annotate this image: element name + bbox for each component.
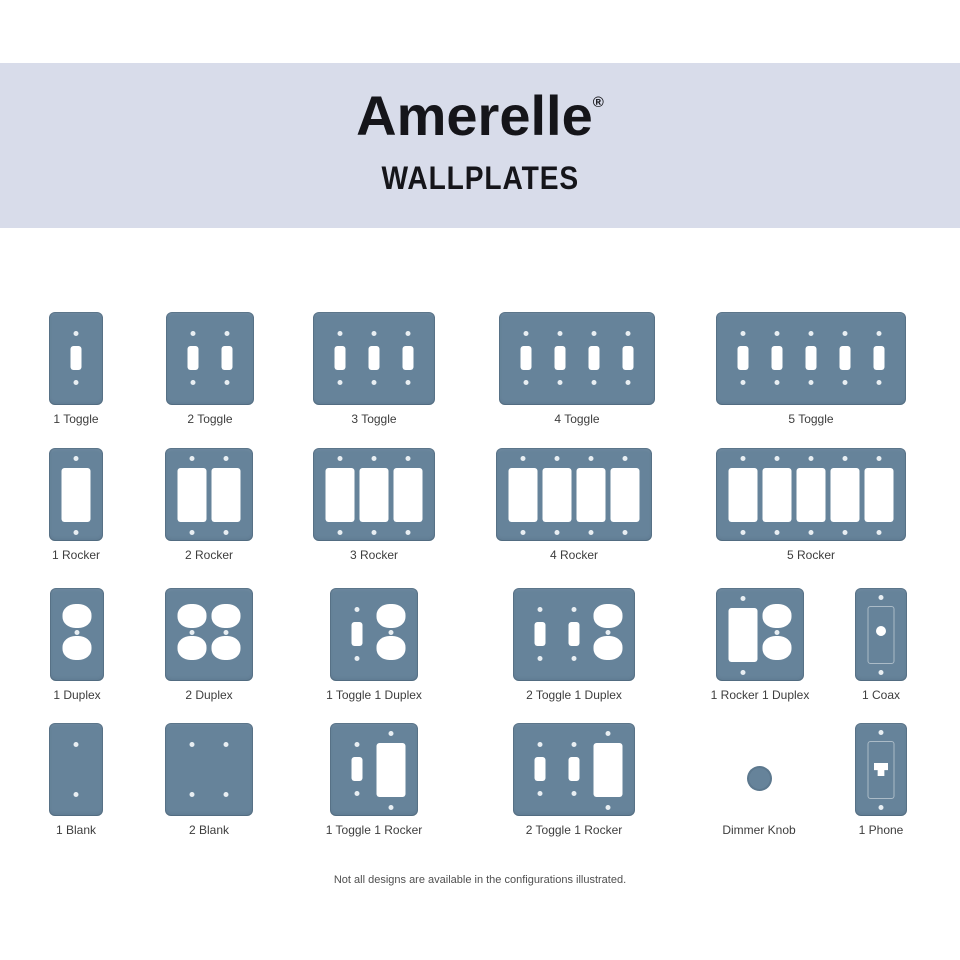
dimmer-knob-illustration	[747, 766, 772, 791]
screw-hole	[538, 791, 543, 796]
rocker-gang	[862, 448, 896, 541]
rocker-gang	[608, 448, 642, 541]
screw-hole	[406, 530, 411, 535]
duplex-gang	[374, 588, 408, 681]
toggle-gang	[357, 312, 391, 405]
screw-hole	[879, 805, 884, 810]
rocker-gang	[828, 448, 862, 541]
item-label-4-toggle: 4 Toggle	[477, 412, 677, 426]
screw-hole	[877, 331, 882, 336]
duplex-outlet-cutout	[212, 636, 241, 660]
toggle-gang	[611, 312, 645, 405]
toggle-cutout	[623, 346, 634, 370]
screw-hole	[843, 456, 848, 461]
toggle-gang	[828, 312, 862, 405]
toggle-cutout	[589, 346, 600, 370]
screw-hole	[592, 331, 597, 336]
screw-hole	[74, 530, 79, 535]
duplex-gang	[209, 588, 243, 681]
screw-hole	[190, 792, 195, 797]
rocker-gang	[760, 448, 794, 541]
wallplate-1-rocker	[49, 448, 103, 541]
screw-hole	[521, 456, 526, 461]
item-label-1-toggle-1-rocker: 1 Toggle 1 Rocker	[274, 823, 474, 837]
screw-hole	[606, 731, 611, 736]
screw-hole	[879, 595, 884, 600]
screw-hole	[741, 596, 746, 601]
rocker-cutout	[543, 468, 572, 522]
wallplate-2-toggle-1-duplex	[513, 588, 635, 681]
rocker-gang	[726, 588, 760, 681]
screw-hole	[74, 792, 79, 797]
rocker-cutout	[797, 468, 826, 522]
screw-hole	[190, 456, 195, 461]
screw-hole	[406, 456, 411, 461]
rocker-cutout	[594, 743, 623, 797]
registered-trademark-icon: ®	[593, 94, 604, 111]
duplex-gang	[760, 588, 794, 681]
screw-hole	[626, 331, 631, 336]
item-label-3-rocker: 3 Rocker	[274, 548, 474, 562]
duplex-outlet-cutout	[594, 604, 623, 628]
wallplate-1-toggle	[49, 312, 103, 405]
screw-hole	[555, 456, 560, 461]
screw-hole	[406, 380, 411, 385]
screw-hole	[809, 380, 814, 385]
rocker-gang	[794, 448, 828, 541]
toggle-gang	[340, 588, 374, 681]
screw-hole	[389, 731, 394, 736]
toggle-cutout	[874, 346, 885, 370]
item-label-1-coax: 1 Coax	[781, 688, 960, 702]
rocker-cutout	[394, 468, 423, 522]
screw-hole	[74, 456, 79, 461]
wallplate-5-rocker	[716, 448, 906, 541]
item-label-1-toggle-1-duplex: 1 Toggle 1 Duplex	[274, 688, 474, 702]
duplex-outlet-cutout	[594, 636, 623, 660]
item-label-5-rocker: 5 Rocker	[711, 548, 911, 562]
duplex-outlet-cutout	[212, 604, 241, 628]
screw-hole	[572, 791, 577, 796]
screw-hole	[389, 805, 394, 810]
toggle-gang	[523, 588, 557, 681]
screw-hole	[338, 331, 343, 336]
screw-hole	[879, 730, 884, 735]
screw-hole	[225, 380, 230, 385]
screw-hole	[775, 630, 780, 635]
screw-hole	[389, 630, 394, 635]
toggle-cutout	[555, 346, 566, 370]
wallplate-2-toggle	[166, 312, 254, 405]
item-label-2-toggle-1-duplex: 2 Toggle 1 Duplex	[474, 688, 674, 702]
screw-hole	[775, 380, 780, 385]
screw-hole	[775, 456, 780, 461]
screw-hole	[775, 530, 780, 535]
screw-hole	[606, 805, 611, 810]
screw-hole	[809, 456, 814, 461]
rocker-gang	[726, 448, 760, 541]
toggle-cutout	[569, 622, 580, 646]
screw-hole	[338, 530, 343, 535]
rocker-gang	[540, 448, 574, 541]
screw-hole	[606, 630, 611, 635]
item-label-4-rocker: 4 Rocker	[474, 548, 674, 562]
duplex-outlet-cutout	[178, 604, 207, 628]
screw-hole	[224, 456, 229, 461]
screw-hole	[524, 331, 529, 336]
screw-hole	[74, 331, 79, 336]
wallplate-2-toggle-1-rocker	[513, 723, 635, 816]
rocker-gang	[209, 448, 243, 541]
wallplate-1-blank	[49, 723, 103, 816]
screw-hole	[775, 331, 780, 336]
screw-hole	[877, 380, 882, 385]
screw-hole	[225, 331, 230, 336]
screw-hole	[190, 530, 195, 535]
screw-hole	[338, 380, 343, 385]
toggle-gang	[523, 723, 557, 816]
brand-name: Amerelle	[356, 84, 593, 147]
rocker-gang	[374, 723, 408, 816]
duplex-outlet-cutout	[763, 604, 792, 628]
rocker-cutout	[729, 608, 758, 662]
toggle-cutout	[772, 346, 783, 370]
wallplate-1-toggle-1-rocker	[330, 723, 418, 816]
rocker-cutout	[360, 468, 389, 522]
screw-hole	[355, 656, 360, 661]
screw-hole	[741, 670, 746, 675]
screw-hole	[190, 630, 195, 635]
screw-hole	[623, 456, 628, 461]
screw-hole	[538, 607, 543, 612]
toggle-cutout	[521, 346, 532, 370]
wallplate-2-blank	[165, 723, 253, 816]
duplex-outlet-cutout	[763, 636, 792, 660]
screw-hole	[572, 656, 577, 661]
screw-hole	[626, 380, 631, 385]
toggle-cutout	[188, 346, 199, 370]
wallplate-4-rocker	[496, 448, 652, 541]
duplex-gang	[60, 588, 94, 681]
duplex-outlet-cutout	[63, 636, 92, 660]
screw-hole	[741, 331, 746, 336]
toggle-cutout	[352, 622, 363, 646]
item-label-2-toggle-1-rocker: 2 Toggle 1 Rocker	[474, 823, 674, 837]
screw-hole	[623, 530, 628, 535]
rocker-cutout	[611, 468, 640, 522]
screw-hole	[572, 607, 577, 612]
rocker-cutout	[509, 468, 538, 522]
blank-gang	[59, 723, 93, 816]
toggle-gang	[340, 723, 374, 816]
toggle-gang	[557, 588, 591, 681]
duplex-gang	[175, 588, 209, 681]
screw-hole	[190, 742, 195, 747]
screw-hole	[843, 530, 848, 535]
toggle-cutout	[71, 346, 82, 370]
toggle-gang	[543, 312, 577, 405]
rocker-cutout	[212, 468, 241, 522]
screw-hole	[741, 530, 746, 535]
toggle-cutout	[806, 346, 817, 370]
toggle-cutout	[403, 346, 414, 370]
phone-gang	[855, 723, 907, 816]
blank-gang	[175, 723, 209, 816]
toggle-cutout	[840, 346, 851, 370]
wallplate-1-rocker-1-duplex	[716, 588, 804, 681]
duplex-gang	[591, 588, 625, 681]
screw-hole	[372, 331, 377, 336]
screw-hole	[75, 630, 80, 635]
wallplate-2-rocker	[165, 448, 253, 541]
rocker-cutout	[577, 468, 606, 522]
screw-hole	[74, 742, 79, 747]
screw-hole	[406, 331, 411, 336]
wallplate-3-toggle	[313, 312, 435, 405]
rocker-gang	[175, 448, 209, 541]
screw-hole	[843, 380, 848, 385]
screw-hole	[372, 456, 377, 461]
screw-hole	[224, 742, 229, 747]
toggle-cutout	[738, 346, 749, 370]
screw-hole	[191, 380, 196, 385]
screw-hole	[538, 656, 543, 661]
screw-hole	[224, 630, 229, 635]
screw-hole	[555, 530, 560, 535]
rocker-gang	[357, 448, 391, 541]
rocker-gang	[574, 448, 608, 541]
rocker-cutout	[326, 468, 355, 522]
rocker-gang	[59, 448, 93, 541]
screw-hole	[524, 380, 529, 385]
subtitle-text: WALLPLATES	[381, 162, 579, 194]
wallplate-1-duplex	[50, 588, 104, 681]
screw-hole	[521, 530, 526, 535]
toggle-cutout	[222, 346, 233, 370]
rocker-gang	[591, 723, 625, 816]
toggle-gang	[176, 312, 210, 405]
toggle-cutout	[535, 757, 546, 781]
item-label-3-toggle: 3 Toggle	[274, 412, 474, 426]
wallplate-1-phone	[855, 723, 907, 816]
toggle-gang	[557, 723, 591, 816]
toggle-cutout	[352, 757, 363, 781]
product-infographic: Amerelle® WALLPLATES 1 Toggle2 Toggle3 T…	[0, 0, 960, 960]
rocker-cutout	[377, 743, 406, 797]
coax-hole-cutout	[876, 626, 886, 636]
screw-hole	[809, 331, 814, 336]
wallplate-4-toggle	[499, 312, 655, 405]
screw-hole	[372, 380, 377, 385]
brand-logo: Amerelle®	[0, 88, 960, 144]
screw-hole	[877, 456, 882, 461]
screw-hole	[74, 380, 79, 385]
coax-gang	[855, 588, 907, 681]
rocker-cutout	[763, 468, 792, 522]
rocker-cutout	[178, 468, 207, 522]
toggle-gang	[323, 312, 357, 405]
subtitle: WALLPLATES	[0, 162, 960, 194]
rocker-gang	[391, 448, 425, 541]
screw-hole	[879, 670, 884, 675]
screw-hole	[224, 530, 229, 535]
toggle-cutout	[569, 757, 580, 781]
screw-hole	[589, 456, 594, 461]
duplex-outlet-cutout	[178, 636, 207, 660]
screw-hole	[809, 530, 814, 535]
screw-hole	[877, 530, 882, 535]
toggle-gang	[760, 312, 794, 405]
screw-hole	[572, 742, 577, 747]
screw-hole	[355, 742, 360, 747]
toggle-cutout	[369, 346, 380, 370]
screw-hole	[338, 456, 343, 461]
duplex-outlet-cutout	[377, 604, 406, 628]
toggle-gang	[210, 312, 244, 405]
rocker-cutout	[729, 468, 758, 522]
wallplate-3-rocker	[313, 448, 435, 541]
wallplate-2-duplex	[165, 588, 253, 681]
toggle-gang	[726, 312, 760, 405]
rocker-cutout	[865, 468, 894, 522]
toggle-gang	[59, 312, 93, 405]
rocker-cutout	[831, 468, 860, 522]
toggle-gang	[577, 312, 611, 405]
screw-hole	[592, 380, 597, 385]
wallplate-1-toggle-1-duplex	[330, 588, 418, 681]
wallplate-5-toggle	[716, 312, 906, 405]
wallplate-1-coax	[855, 588, 907, 681]
screw-hole	[355, 607, 360, 612]
duplex-outlet-cutout	[63, 604, 92, 628]
rocker-cutout	[62, 468, 91, 522]
screw-hole	[224, 792, 229, 797]
rocker-gang	[506, 448, 540, 541]
screw-hole	[558, 380, 563, 385]
screw-hole	[372, 530, 377, 535]
toggle-gang	[862, 312, 896, 405]
toggle-cutout	[335, 346, 346, 370]
screw-hole	[589, 530, 594, 535]
disclaimer-text: Not all designs are available in the con…	[0, 874, 960, 886]
item-label-1-phone: 1 Phone	[781, 823, 960, 837]
screw-hole	[558, 331, 563, 336]
duplex-outlet-cutout	[377, 636, 406, 660]
screw-hole	[355, 791, 360, 796]
rocker-gang	[323, 448, 357, 541]
toggle-cutout	[535, 622, 546, 646]
screw-hole	[191, 331, 196, 336]
screw-hole	[741, 380, 746, 385]
screw-hole	[741, 456, 746, 461]
toggle-gang	[391, 312, 425, 405]
toggle-gang	[794, 312, 828, 405]
screw-hole	[843, 331, 848, 336]
item-label-5-toggle: 5 Toggle	[711, 412, 911, 426]
toggle-gang	[509, 312, 543, 405]
blank-gang	[209, 723, 243, 816]
screw-hole	[538, 742, 543, 747]
